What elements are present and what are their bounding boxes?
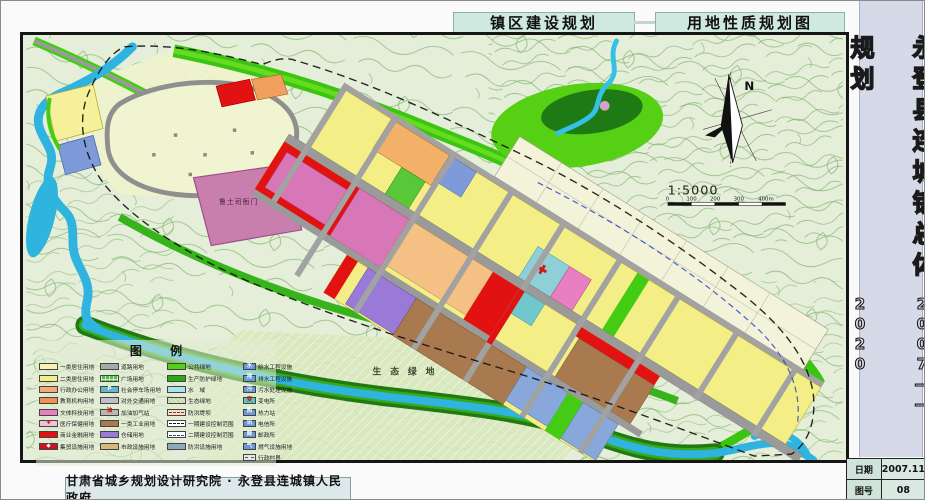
legend-column: 水给水工程设施排排水工程设施污污水处理设施变变电所热热力站讯电信所邮邮政所气燃气…: [240, 361, 294, 463]
legend-item: 防洪堤坝: [167, 408, 236, 417]
header-title-landuse-label: 用地性质规划图: [687, 12, 813, 33]
legend-item-label: 二期建设控制范围: [188, 431, 234, 440]
credit-box: 甘肃省城乡规划设计研究院 · 永登县连城镇人民政府: [65, 477, 351, 500]
sw-market-swatch: ◆: [39, 443, 58, 450]
legend-item-label: 市政设施用地: [121, 442, 155, 451]
legend-item: 一类居住用地: [39, 362, 96, 371]
legend-item: 市政设施用地: [100, 442, 163, 451]
scale-tick-1: 100: [686, 196, 697, 202]
scale-tick-2: 200: [710, 196, 721, 202]
legend-item-label: 污水处理设施: [258, 385, 292, 394]
legend-item-label: 燃气设施用地: [258, 442, 292, 451]
legend-item-label: 行政办公用地: [60, 385, 94, 394]
sw-util2-swatch: 变: [243, 397, 256, 404]
legend-title: 图 例: [39, 342, 273, 359]
sw-dike-swatch: [167, 409, 186, 416]
legend-column: 道路用地广场用地P社会停车场用地对外交通用地油加油加气站一类工业用地仓储用地市政…: [100, 361, 163, 463]
sw-util-swatch: 排: [243, 375, 256, 382]
legend-item-label: 教育机构用地: [60, 397, 94, 406]
legend-item: 道路用地: [100, 362, 163, 371]
sw-storage-swatch: [100, 431, 119, 438]
sw-eco-swatch: [167, 397, 186, 404]
sw-edu-swatch: [39, 397, 58, 404]
sw-industry-swatch: [100, 420, 119, 427]
sw-util-swatch: 污: [243, 386, 256, 393]
sw-plaza-swatch: [100, 375, 119, 382]
legend-item: 生态绿地: [167, 396, 236, 405]
sw-util-swatch: 邮: [243, 431, 256, 438]
sw-parking-swatch: P: [100, 386, 119, 393]
legend-item: P社会停车场用地: [100, 385, 163, 394]
sw-culture-swatch: [39, 409, 58, 416]
legend-item-label: 公共绿地: [188, 362, 211, 371]
header-title-construction: 镇区建设规划: [453, 12, 635, 33]
legend-item-label: 广场用地: [121, 374, 144, 383]
side-panel: 永登县连城镇总体规划 2007——2020: [859, 1, 923, 457]
legend-item-label: 水 域: [188, 385, 205, 394]
lutusi-label: 鲁土司衙门: [219, 197, 258, 206]
legend-item: 公共绿地: [167, 362, 236, 371]
legend-item-label: 一期建设控制范围: [188, 419, 234, 428]
legend-item: 油加油加气站: [100, 408, 163, 417]
legend-item: 一类工业用地: [100, 419, 163, 428]
plan-title-vertical: 永登县连城镇总体规划: [829, 35, 925, 287]
sw-r1-swatch: [39, 363, 58, 370]
legend-item: 商业金融用地: [39, 430, 96, 439]
sw-admin-swatch: [39, 386, 58, 393]
north-label: N: [744, 79, 754, 93]
sheet-number-value: 08: [881, 480, 925, 500]
sw-gas-swatch: 油: [100, 409, 119, 416]
legend-item-label: 给水工程设施: [258, 362, 292, 371]
legend-item-label: 对外交通用地: [121, 397, 155, 406]
legend-item-label: 生产防护绿地: [188, 374, 222, 383]
scale-tick-4: 400m: [758, 196, 774, 202]
legend-item-label: 热力站: [258, 408, 275, 417]
legend-item: 教育机构用地: [39, 396, 96, 405]
legend-column: 公共绿地生产防护绿地水 域生态绿地防洪堤坝一期建设控制范围二期建设控制范围防洪设…: [167, 361, 236, 463]
sw-water-swatch: [167, 386, 186, 393]
sw-util-swatch: 气: [243, 443, 256, 450]
legend-item-label: 排水工程设施: [258, 374, 292, 383]
legend-item-label: 加油加气站: [121, 408, 150, 417]
sw-green-prot-swatch: [167, 375, 186, 382]
sw-phase1-swatch: [167, 420, 186, 427]
plan-sheet: 镇区建设规划 用地性质规划图: [0, 0, 925, 500]
credit-text: 甘肃省城乡规划设计研究院 · 永登县连城镇人民政府: [66, 472, 350, 500]
legend-item: 污污水处理设施: [240, 385, 294, 394]
legend-column: 一类居住用地二类居住用地行政办公用地教育机构用地文体科技用地✚医疗保健用地商业金…: [39, 361, 96, 463]
sw-phase2-swatch: [167, 431, 186, 438]
legend-item-label: 道路用地: [121, 362, 144, 371]
title-block: 日期 2007.11 图号 08: [846, 458, 925, 500]
legend-item: 广场用地: [100, 374, 163, 383]
legend-item: 变变电所: [240, 396, 294, 405]
sw-biz-swatch: [39, 431, 58, 438]
legend-item: ✚医疗保健用地: [39, 419, 96, 428]
sw-util-swatch: 水: [243, 363, 256, 370]
legend-item: 水给水工程设施: [240, 362, 294, 371]
legend-item-label: 二类居住用地: [60, 374, 94, 383]
legend-item: 对外交通用地: [100, 396, 163, 405]
legend-item: 行政办公用地: [39, 385, 96, 394]
scale-tick-3: 300: [734, 196, 745, 202]
legend-item-label: 变电所: [258, 397, 275, 406]
legend-item: 一期建设控制范围: [167, 419, 236, 428]
legend-item-label: 一类工业用地: [121, 419, 155, 428]
legend-item: 二类居住用地: [39, 374, 96, 383]
legend-item-label: 文体科技用地: [60, 408, 94, 417]
legend-item-label: 一类居住用地: [60, 362, 94, 371]
legend-item: 气燃气设施用地: [240, 442, 294, 451]
legend-item: 防洪设施用地: [167, 442, 236, 451]
plan-years-vertical: 2007——2020: [829, 295, 925, 457]
sw-boundary-swatch: [243, 454, 256, 461]
legend-item-label: 防洪设施用地: [188, 442, 222, 451]
legend-item-label: 电信所: [258, 419, 275, 428]
legend-item: 水 域: [167, 385, 236, 394]
legend-item-label: 医疗保健用地: [60, 419, 94, 428]
sw-road-swatch: [100, 363, 119, 370]
legend-item-label: 仓储用地: [121, 431, 144, 440]
sw-green-pub-swatch: [167, 363, 186, 370]
legend-item-label: 行政村界: [258, 453, 281, 462]
header-title-connector: [634, 21, 656, 24]
header-title-landuse: 用地性质规划图: [655, 12, 845, 33]
legend-item-label: 生态绿地: [188, 397, 211, 406]
legend-item: 二期建设控制范围: [167, 430, 236, 439]
legend-item-label: 集贸设施用地: [60, 442, 94, 451]
legend-item: 生产防护绿地: [167, 374, 236, 383]
legend-item: 文体科技用地: [39, 408, 96, 417]
sw-transport-swatch: [100, 397, 119, 404]
sw-municipal-swatch: [100, 443, 119, 450]
legend-item-label: 邮政所: [258, 431, 275, 440]
legend-item: 排排水工程设施: [240, 374, 294, 383]
legend-item-label: 商业金融用地: [60, 431, 94, 440]
sw-flood-swatch: [167, 443, 186, 450]
legend-item: 行政村界: [240, 453, 294, 462]
legend: 图 例 一类居住用地二类居住用地行政办公用地教育机构用地文体科技用地✚医疗保健用…: [36, 340, 276, 466]
legend-item: 讯电信所: [240, 419, 294, 428]
legend-item: 邮邮政所: [240, 430, 294, 439]
legend-columns: 一类居住用地二类居住用地行政办公用地教育机构用地文体科技用地✚医疗保健用地商业金…: [39, 361, 273, 463]
scale-tick-0: 0: [666, 196, 670, 202]
legend-item: 热热力站: [240, 408, 294, 417]
date-value: 2007.11: [881, 459, 925, 480]
date-label: 日期: [847, 459, 882, 480]
sheet-number-label: 图号: [847, 480, 882, 500]
sw-util-swatch: 讯: [243, 420, 256, 427]
legend-item: 仓储用地: [100, 430, 163, 439]
legend-item-label: 防洪堤坝: [188, 408, 211, 417]
sw-r2-swatch: [39, 375, 58, 382]
eco-green-label: 生态绿地: [373, 365, 444, 377]
legend-item-label: 社会停车场用地: [121, 385, 161, 394]
sw-medical-swatch: ✚: [39, 420, 58, 427]
sw-util-swatch: 热: [243, 409, 256, 416]
legend-item: ◆集贸设施用地: [39, 442, 96, 451]
header-title-construction-label: 镇区建设规划: [490, 12, 598, 33]
